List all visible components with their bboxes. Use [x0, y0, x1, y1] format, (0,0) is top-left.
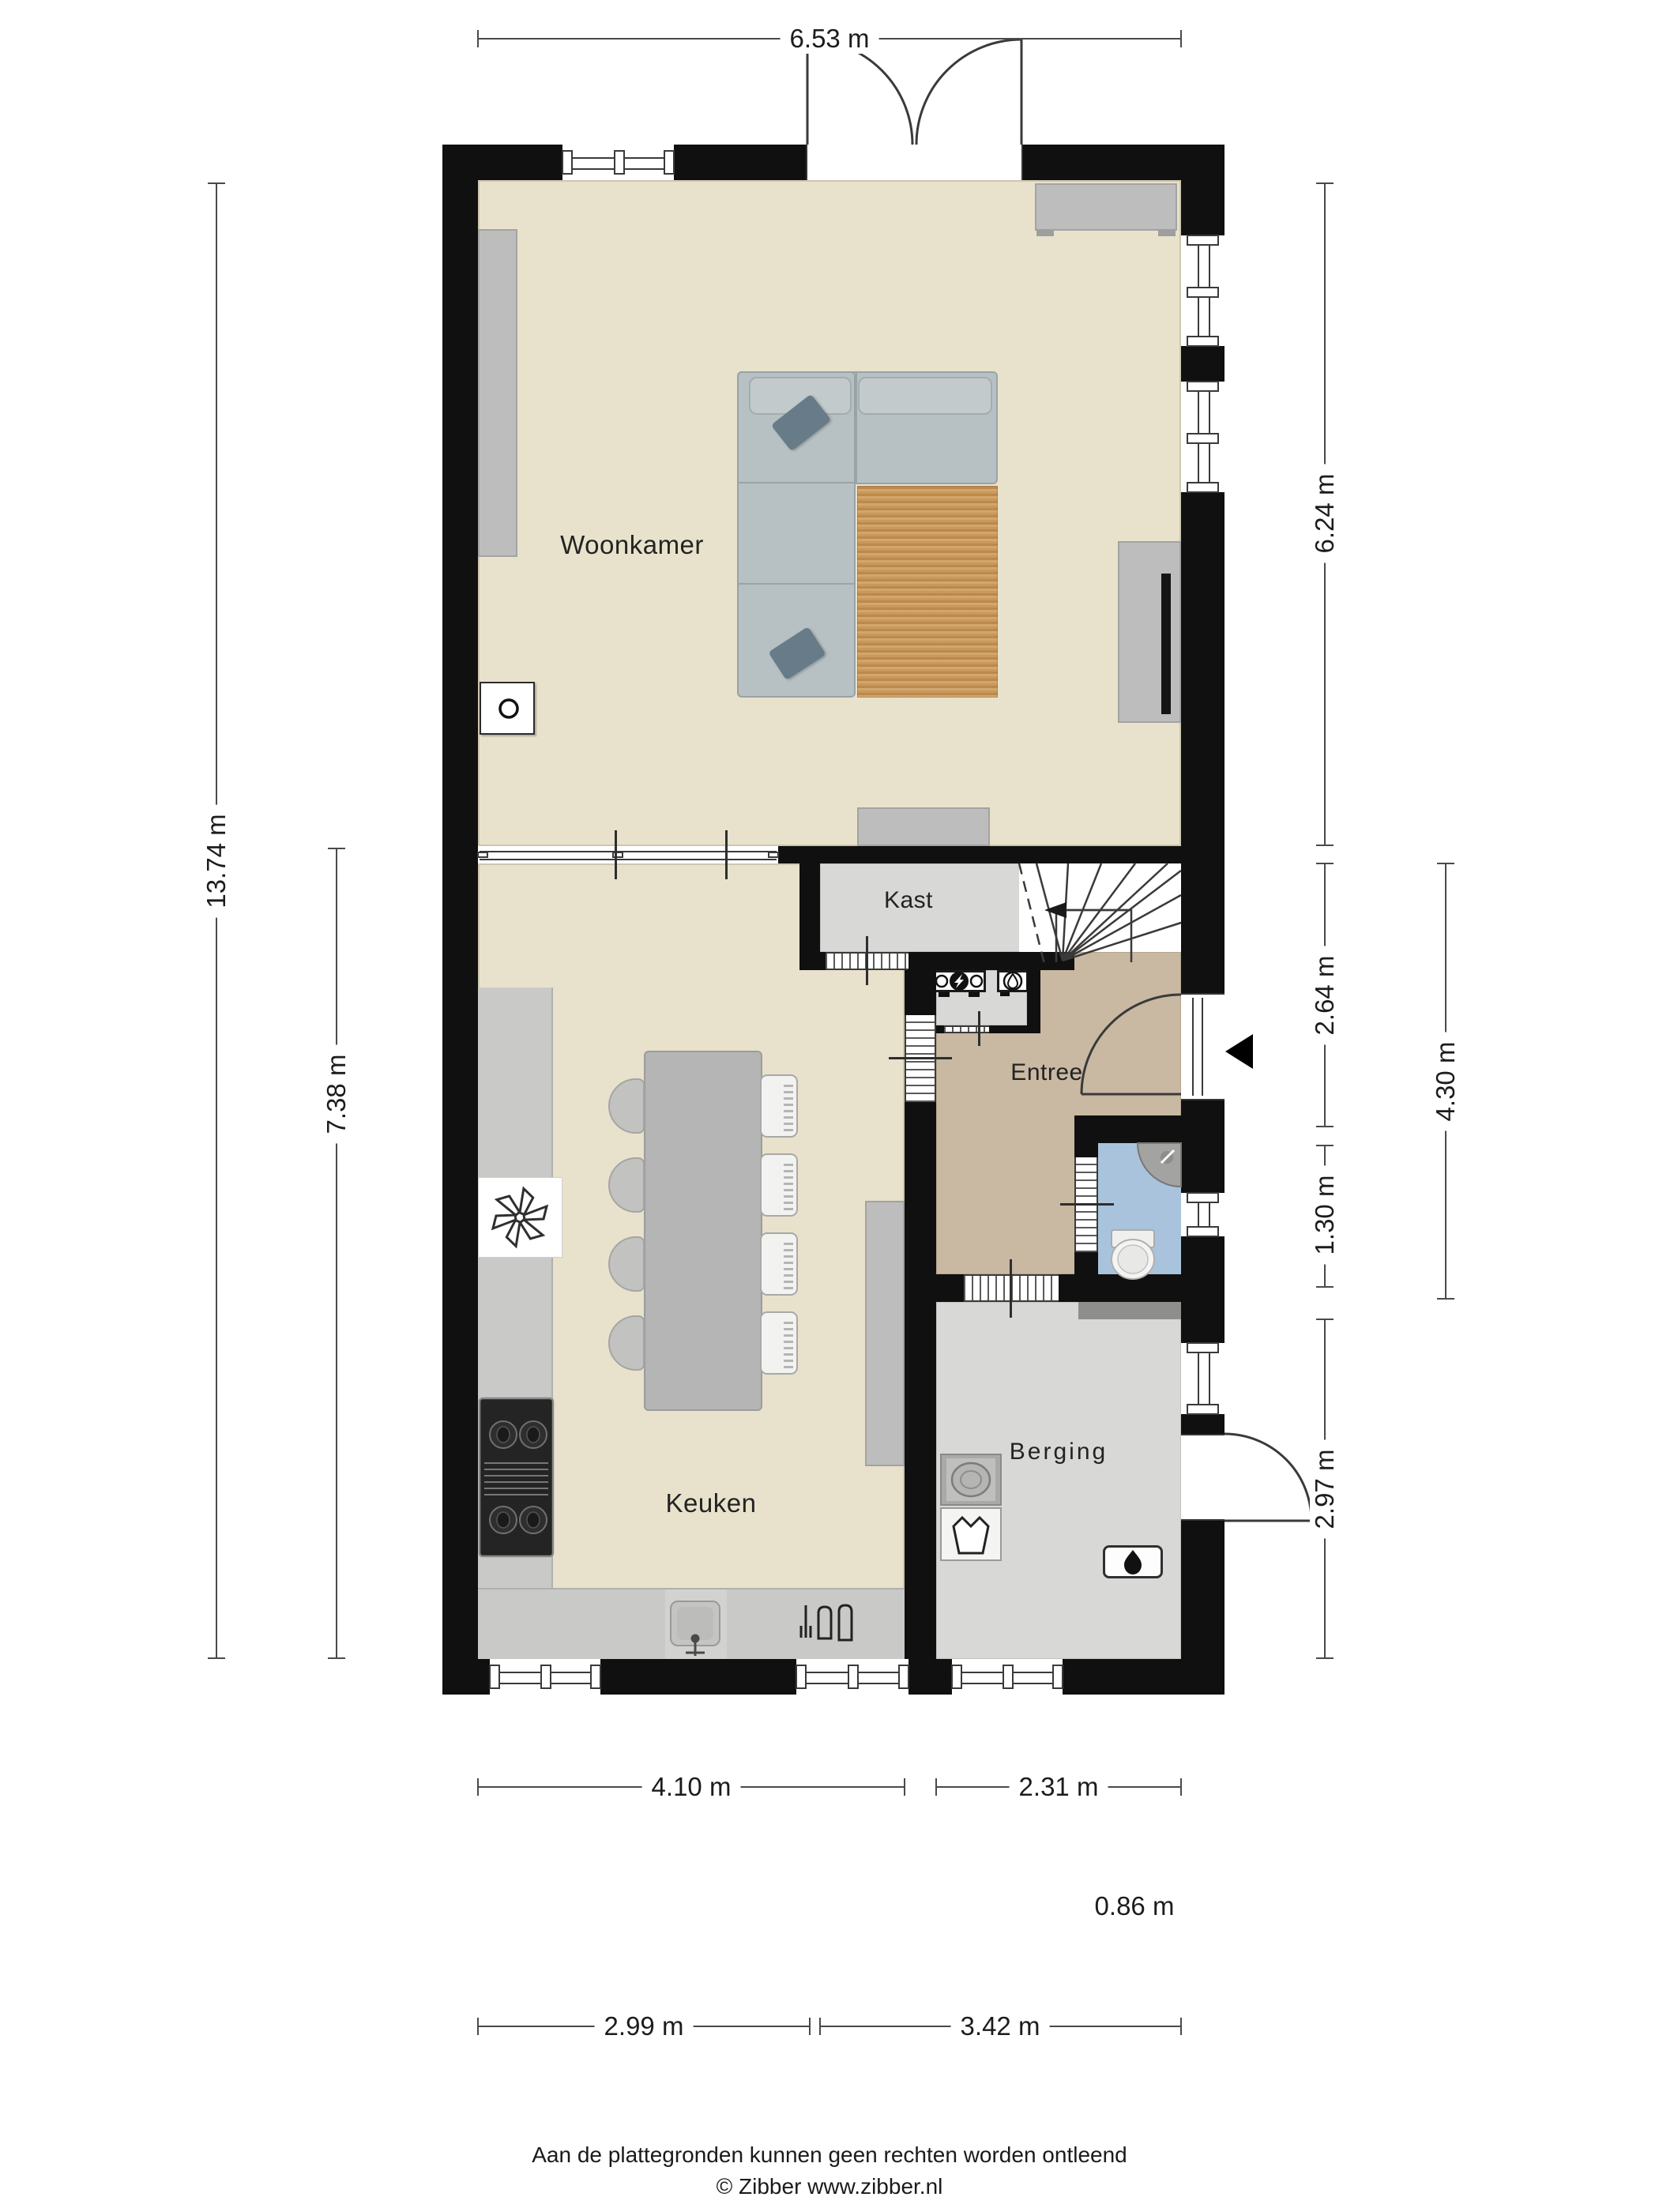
dining-chair-4	[760, 1311, 798, 1375]
sideboard	[857, 807, 990, 846]
wall-right-6	[1181, 1414, 1224, 1434]
partition-tick-2	[725, 830, 728, 879]
tall-cabinet	[865, 1201, 905, 1466]
entree-storage-tick	[1010, 1259, 1012, 1318]
dining-chair-3	[760, 1232, 798, 1296]
toilet-door-tick	[1060, 1203, 1114, 1206]
dim-label-right-livingroom: 6.24 m	[1310, 465, 1340, 563]
boiler	[1103, 1545, 1163, 1578]
window-right-2	[1181, 382, 1224, 492]
sofa-back-cushion-2	[858, 377, 992, 415]
window-bottom-1	[490, 1659, 600, 1695]
dining-chair-2	[760, 1153, 798, 1217]
wall-entree-south-1	[905, 1274, 964, 1302]
meter-box-electric	[932, 970, 986, 992]
window-top	[562, 145, 674, 180]
window-right-1	[1181, 235, 1224, 346]
rug	[857, 486, 998, 698]
wall-right-5	[1181, 1236, 1224, 1343]
storage-door-opening	[1181, 1434, 1224, 1521]
front-door-opening	[1181, 993, 1224, 1100]
dim-line-left-total	[216, 183, 217, 1659]
floor-stairs	[1019, 863, 1181, 964]
floorplan-canvas: Woonkamer Keuken Kast Entree Berging 6.5…	[0, 0, 1659, 2212]
wall-right-3	[1181, 492, 1224, 993]
sofa-seam-3	[856, 373, 857, 483]
wall-kitchen-berging	[905, 1302, 936, 1659]
wall-toilet-west-2	[1074, 1252, 1098, 1274]
wall-niche-south-1	[936, 1025, 944, 1033]
dim-label-bottom-left: 2.99 m	[595, 2011, 694, 2041]
double-door-icon	[807, 39, 1021, 145]
wall-top-2	[674, 145, 806, 180]
toilet-tank	[1111, 1229, 1155, 1248]
niche-door-tick	[978, 1011, 980, 1046]
tv-screen	[1161, 574, 1171, 714]
wall-left	[442, 145, 478, 1695]
extractor-inset	[478, 1177, 562, 1258]
floor-toilet	[1098, 1143, 1181, 1274]
kitchen-entree-tick	[889, 1057, 952, 1059]
dim-label-bottom-right: 3.42 m	[951, 2011, 1050, 2041]
dim-label-bottom-berging: 2.31 m	[1010, 1772, 1108, 1802]
niche-door-opening	[944, 1025, 989, 1033]
wall-entree-south-2	[1059, 1274, 1181, 1302]
kitchen-counter-left	[478, 987, 553, 1659]
dim-label-bottom-kitchen: 4.10 m	[642, 1772, 741, 1802]
wood-stove-box	[480, 682, 535, 735]
label-kast: Kast	[884, 887, 933, 914]
wall-niche-east	[1027, 970, 1040, 1033]
dim-label-right-entree: 2.64 m	[1310, 946, 1340, 1045]
glazed-partition	[478, 846, 778, 863]
partition-tick-1	[615, 830, 617, 879]
washing-machine-inner	[946, 1458, 995, 1501]
wall-niche-south-2	[989, 1025, 1040, 1033]
cabinet-foot-right	[1158, 229, 1176, 236]
dining-table	[644, 1051, 762, 1411]
wall-livingroom-south	[778, 846, 1181, 863]
sofa-seam-1	[739, 482, 854, 483]
cabinet-foot-left	[1036, 229, 1054, 236]
sink-basin-inner	[677, 1607, 713, 1640]
meter-box-water	[997, 970, 1029, 992]
storage-door-icon	[1224, 1434, 1311, 1521]
dim-label-top: 6.53 m	[781, 24, 879, 54]
dining-chair-1	[760, 1074, 798, 1138]
closet-door-tick	[866, 936, 868, 985]
window-bottom-2	[796, 1659, 908, 1695]
label-woonkamer: Woonkamer	[560, 530, 704, 560]
wall-bottom-1	[442, 1659, 490, 1695]
window-toilet	[1181, 1193, 1224, 1236]
wall-kitchen-entree-2	[905, 1102, 936, 1274]
wall-closet-west	[799, 863, 820, 952]
wall-toilet-west-1	[1074, 1143, 1098, 1157]
entrance-arrow-icon	[1225, 1034, 1253, 1069]
dim-label-right-berging: 2.97 m	[1310, 1440, 1340, 1539]
storage-threshold	[1078, 1302, 1181, 1319]
label-entree: Entree	[1010, 1059, 1082, 1086]
wall-right-4	[1181, 1100, 1224, 1193]
wall-bottom-2	[600, 1659, 796, 1695]
wall-toilet-north	[1074, 1115, 1181, 1143]
sofa-seam-2	[739, 583, 854, 585]
dim-label-right-hall: 4.30 m	[1431, 1033, 1461, 1131]
livingroom-cabinet-top	[1035, 183, 1177, 231]
footer-disclaimer: Aan de plattegronden kunnen geen rechten…	[0, 2142, 1659, 2168]
label-keuken: Keuken	[666, 1488, 757, 1518]
dim-line-left-kitchen	[336, 848, 337, 1659]
laundry-box	[940, 1507, 1002, 1561]
wall-kitchen-entree-1	[905, 952, 936, 1015]
wall-bottom-3	[908, 1659, 952, 1695]
footer-credit: © Zibber www.zibber.nl	[0, 2174, 1659, 2199]
dim-label-bottom-small: 0.86 m	[1085, 1891, 1184, 1921]
label-berging: Berging	[1010, 1439, 1108, 1465]
tv-unit	[1118, 541, 1181, 723]
dim-label-left-kitchen: 7.38 m	[322, 1045, 352, 1144]
wall-right-1	[1181, 145, 1224, 235]
dim-label-right-toilet: 1.30 m	[1310, 1166, 1340, 1265]
dim-label-left-total: 13.74 m	[201, 804, 231, 917]
wall-closet-south-1	[799, 952, 826, 970]
double-door-opening	[806, 145, 1023, 180]
wall-right-2	[1181, 346, 1224, 382]
window-storage	[1181, 1343, 1224, 1414]
livingroom-cabinet-left	[478, 229, 517, 557]
window-bottom-3	[952, 1659, 1063, 1695]
wall-bottom-4	[1063, 1659, 1224, 1695]
